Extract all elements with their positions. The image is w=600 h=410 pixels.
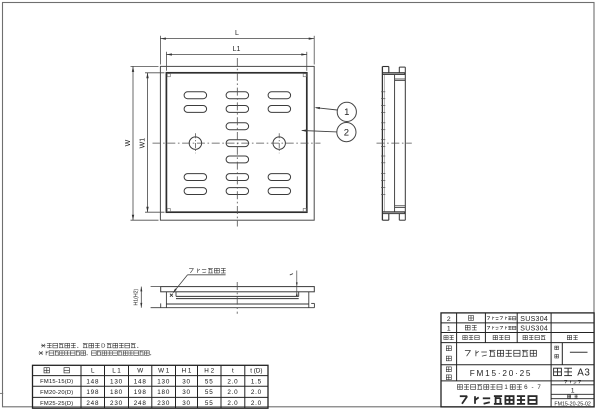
svg-text:W: W — [137, 368, 143, 375]
svg-text:D: D — [101, 344, 105, 350]
svg-text:180: 180 — [110, 389, 123, 396]
svg-text:H 2: H 2 — [204, 368, 214, 375]
svg-text:248: 248 — [86, 400, 99, 407]
svg-text:230: 230 — [157, 400, 170, 407]
svg-text:FM15-15(D): FM15-15(D) — [40, 379, 73, 385]
svg-text:FM15-20-25-02: FM15-20-25-02 — [554, 401, 591, 407]
svg-text:L: L — [91, 368, 95, 375]
svg-text:FM20-20(D): FM20-20(D) — [40, 390, 73, 396]
svg-text:2.0: 2.0 — [227, 389, 238, 396]
svg-text:130: 130 — [110, 378, 123, 385]
svg-text:1: 1 — [447, 326, 451, 333]
svg-text:W: W — [125, 139, 132, 146]
svg-text:A3: A3 — [577, 367, 590, 378]
svg-text:L1: L1 — [233, 46, 241, 53]
svg-text:248: 248 — [134, 400, 147, 407]
svg-text:30: 30 — [182, 378, 191, 385]
svg-text:t (D): t (D) — [250, 368, 262, 375]
svg-text:180: 180 — [157, 389, 170, 396]
svg-text:6: 6 — [524, 384, 528, 391]
svg-text:7: 7 — [537, 384, 541, 391]
svg-text:55: 55 — [205, 400, 214, 407]
svg-text:FM15·20·25: FM15·20·25 — [470, 369, 533, 378]
svg-text:2: 2 — [447, 316, 451, 323]
svg-text:t: t — [232, 368, 234, 375]
svg-text:2.0: 2.0 — [251, 400, 262, 407]
svg-text:1: 1 — [504, 384, 508, 391]
svg-text:L: L — [235, 30, 239, 37]
svg-text:1: 1 — [571, 387, 575, 394]
svg-text:-: - — [531, 384, 533, 391]
svg-text:W 1: W 1 — [158, 368, 170, 375]
svg-text:30: 30 — [182, 400, 191, 407]
svg-text:W1: W1 — [139, 138, 146, 149]
svg-text:H1(H2): H1(H2) — [134, 288, 140, 305]
svg-text:2: 2 — [344, 127, 349, 138]
svg-text:198: 198 — [86, 389, 99, 396]
svg-text:SUS304: SUS304 — [520, 326, 548, 333]
svg-text:55: 55 — [205, 378, 214, 385]
svg-text:1: 1 — [344, 107, 349, 118]
svg-text:H 1: H 1 — [182, 368, 192, 375]
svg-text:2.0: 2.0 — [227, 378, 238, 385]
svg-text:148: 148 — [134, 378, 147, 385]
svg-text:L 1: L 1 — [112, 368, 121, 375]
svg-text:SUS304: SUS304 — [520, 316, 548, 323]
svg-text:FM25-25(D): FM25-25(D) — [40, 401, 73, 407]
svg-text:1.5: 1.5 — [251, 378, 262, 385]
svg-text:2.0: 2.0 — [251, 389, 262, 396]
svg-text:198: 198 — [134, 389, 147, 396]
svg-text:148: 148 — [86, 378, 99, 385]
svg-text:55: 55 — [205, 389, 214, 396]
svg-text:2.0: 2.0 — [227, 400, 238, 407]
svg-text:30: 30 — [182, 389, 191, 396]
svg-text:130: 130 — [157, 378, 170, 385]
svg-text:230: 230 — [110, 400, 123, 407]
